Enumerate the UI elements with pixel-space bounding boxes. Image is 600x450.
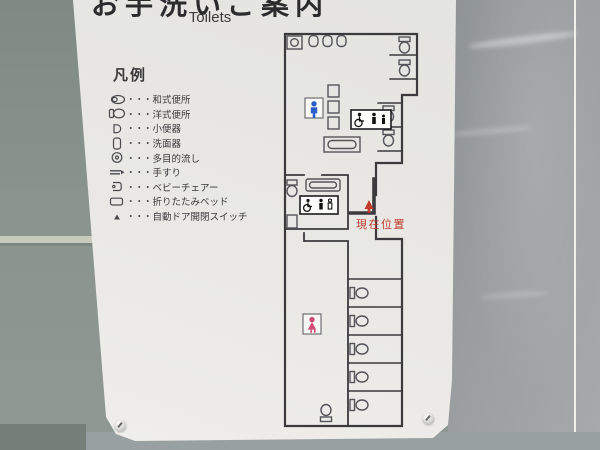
tile-grout-line bbox=[0, 236, 105, 243]
legend-separator: ・・・ bbox=[126, 209, 152, 223]
urinal-icon bbox=[107, 122, 126, 135]
baby-chair-icon bbox=[107, 180, 126, 193]
legend-item-label: 洋式便所 bbox=[153, 107, 191, 121]
legend-item-baby-chair: ・・・ ベビーチェアー bbox=[107, 180, 272, 195]
photo-of-toilet-guide-sign: お手洗いご案内 Toilets 凡例 ・・・ 和式便所 ・・・ 洋式便所 ・・・… bbox=[0, 0, 600, 450]
auto-door-switch-icon bbox=[107, 210, 126, 223]
legend-item-label: 自動ドア開閉スイッチ bbox=[153, 209, 248, 223]
washbasin-icon bbox=[107, 137, 126, 150]
western-toilet-icon bbox=[107, 107, 126, 120]
legend-item-label: 手すり bbox=[153, 165, 182, 179]
legend-separator: ・・・ bbox=[126, 121, 152, 135]
legend-separator: ・・・ bbox=[126, 151, 152, 165]
legend-separator: ・・・ bbox=[126, 92, 152, 106]
sign-title-english: Toilets bbox=[80, 9, 340, 26]
legend-item-label: 和式便所 bbox=[153, 92, 191, 106]
tile-grout-shadow bbox=[0, 243, 105, 246]
legend-item-folding-bed: ・・・ 折りたたみベッド bbox=[107, 194, 272, 209]
accessible-sign-1 bbox=[351, 110, 391, 129]
legend-item-western-toilet: ・・・ 洋式便所 bbox=[107, 107, 272, 122]
right-pillar bbox=[574, 0, 600, 450]
legend: 凡例 ・・・ 和式便所 ・・・ 洋式便所 ・・・ 小便器 ・・・ 洗面器 bbox=[107, 64, 272, 223]
folding-bed-icon bbox=[107, 195, 126, 208]
screw-slot bbox=[425, 415, 430, 421]
floor-plan: 現在位置 bbox=[276, 27, 425, 436]
current-location-marker: 現在位置 bbox=[356, 200, 406, 231]
legend-item-label: 折りたたみベッド bbox=[153, 194, 229, 208]
mens-room-icon bbox=[305, 98, 323, 118]
legend-item-multipurpose-sink: ・・・ 多目的流し bbox=[107, 150, 272, 165]
legend-separator: ・・・ bbox=[126, 165, 152, 179]
handrail-icon bbox=[107, 166, 126, 179]
legend-title: 凡例 bbox=[113, 64, 272, 85]
screw-slot bbox=[117, 422, 122, 428]
current-location-label: 現在位置 bbox=[356, 217, 406, 231]
legend-item-label: 小便器 bbox=[153, 121, 182, 135]
legend-item-urinal: ・・・ 小便器 bbox=[107, 121, 272, 136]
multipurpose-sink-icon bbox=[107, 151, 126, 164]
womens-room-icon bbox=[303, 314, 321, 334]
legend-item-label: 多目的流し bbox=[153, 151, 201, 165]
screw bbox=[115, 420, 126, 431]
legend-item-washbasin: ・・・ 洗面器 bbox=[107, 136, 272, 151]
legend-item-label: ベビーチェアー bbox=[153, 180, 219, 194]
legend-separator: ・・・ bbox=[126, 107, 152, 121]
legend-item-label: 洗面器 bbox=[153, 136, 182, 150]
legend-item-auto-door-switch: ・・・ 自動ドア開閉スイッチ bbox=[107, 209, 272, 224]
squat-toilet-icon bbox=[107, 93, 126, 106]
accessible-sign-2 bbox=[300, 196, 338, 214]
bottom-left-tile-corner bbox=[0, 424, 86, 450]
legend-item-handrail: ・・・ 手すり bbox=[107, 165, 272, 180]
legend-separator: ・・・ bbox=[126, 136, 152, 150]
legend-item-squat-toilet: ・・・ 和式便所 bbox=[107, 92, 272, 107]
legend-separator: ・・・ bbox=[126, 194, 152, 208]
legend-separator: ・・・ bbox=[126, 180, 152, 194]
